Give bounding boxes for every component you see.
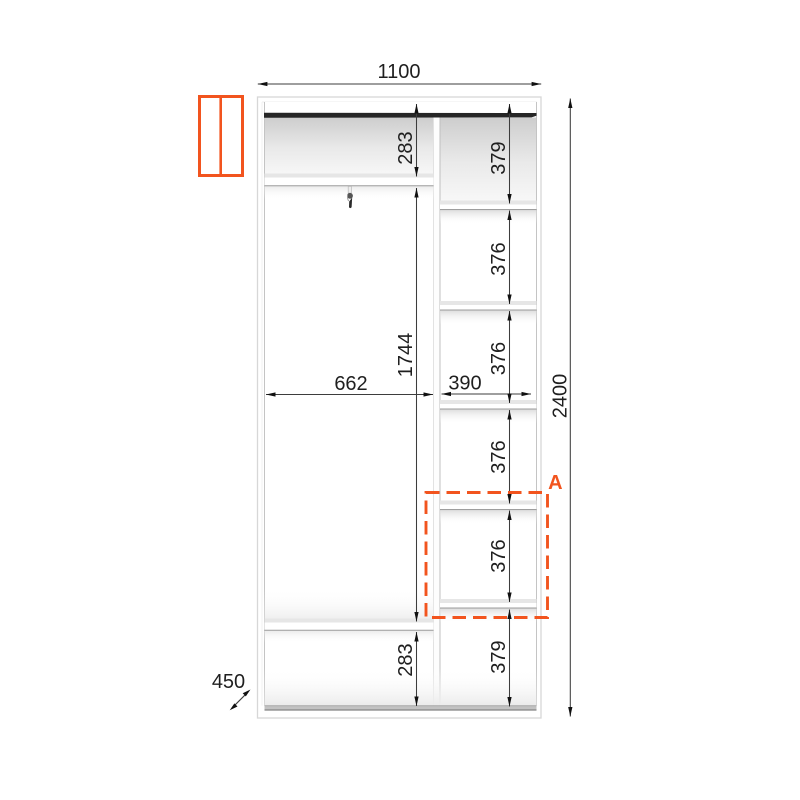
svg-text:376: 376 bbox=[488, 342, 510, 375]
svg-text:390: 390 bbox=[448, 373, 481, 395]
svg-text:379: 379 bbox=[488, 640, 510, 673]
svg-text:1100: 1100 bbox=[377, 61, 420, 83]
svg-text:1744: 1744 bbox=[395, 333, 417, 378]
svg-text:376: 376 bbox=[488, 440, 510, 473]
svg-text:450: 450 bbox=[212, 671, 245, 693]
svg-text:376: 376 bbox=[488, 539, 510, 572]
svg-text:662: 662 bbox=[334, 373, 367, 395]
svg-text:283: 283 bbox=[395, 643, 417, 676]
svg-text:A: A bbox=[548, 472, 562, 494]
svg-text:379: 379 bbox=[488, 141, 510, 174]
svg-text:376: 376 bbox=[488, 242, 510, 275]
svg-text:283: 283 bbox=[395, 131, 417, 164]
svg-text:2400: 2400 bbox=[550, 374, 572, 419]
